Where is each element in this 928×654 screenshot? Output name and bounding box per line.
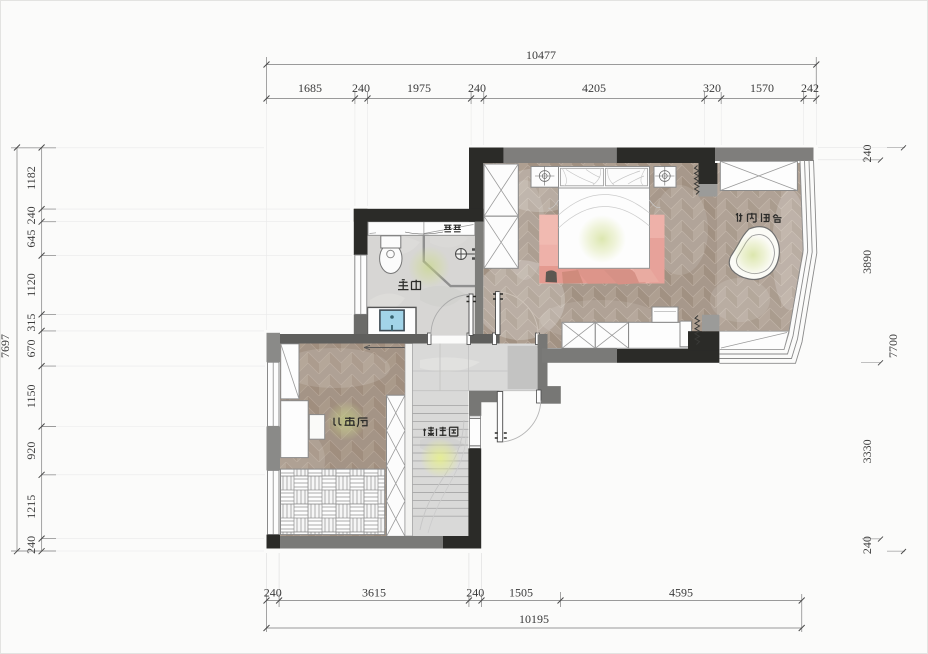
svg-text:10195: 10195	[519, 612, 549, 626]
svg-text:242: 242	[801, 81, 819, 95]
svg-text:1505: 1505	[509, 586, 533, 600]
svg-text:240: 240	[468, 81, 486, 95]
svg-text:240: 240	[860, 145, 874, 163]
svg-text:1150: 1150	[24, 385, 38, 409]
svg-text:1215: 1215	[24, 495, 38, 519]
svg-text:240: 240	[352, 81, 370, 95]
svg-text:240: 240	[24, 206, 38, 224]
svg-text:320: 320	[703, 81, 721, 95]
svg-text:7697: 7697	[0, 334, 12, 358]
svg-text:240: 240	[466, 586, 484, 600]
svg-text:645: 645	[24, 230, 38, 248]
svg-text:3890: 3890	[860, 250, 874, 274]
svg-text:315: 315	[24, 314, 38, 332]
svg-text:240: 240	[860, 536, 874, 554]
svg-text:7700: 7700	[886, 334, 900, 358]
svg-text:4205: 4205	[582, 81, 606, 95]
svg-text:1570: 1570	[750, 81, 774, 95]
svg-text:1182: 1182	[24, 166, 38, 190]
svg-text:920: 920	[24, 442, 38, 460]
svg-text:1975: 1975	[407, 81, 431, 95]
svg-text:1120: 1120	[24, 273, 38, 297]
svg-text:240: 240	[264, 586, 282, 600]
svg-text:670: 670	[24, 340, 38, 358]
svg-text:3615: 3615	[362, 586, 386, 600]
svg-text:4595: 4595	[669, 586, 693, 600]
svg-text:10477: 10477	[526, 48, 556, 62]
svg-text:3330: 3330	[860, 439, 874, 463]
svg-text:1685: 1685	[298, 81, 322, 95]
svg-text:240: 240	[24, 536, 38, 554]
